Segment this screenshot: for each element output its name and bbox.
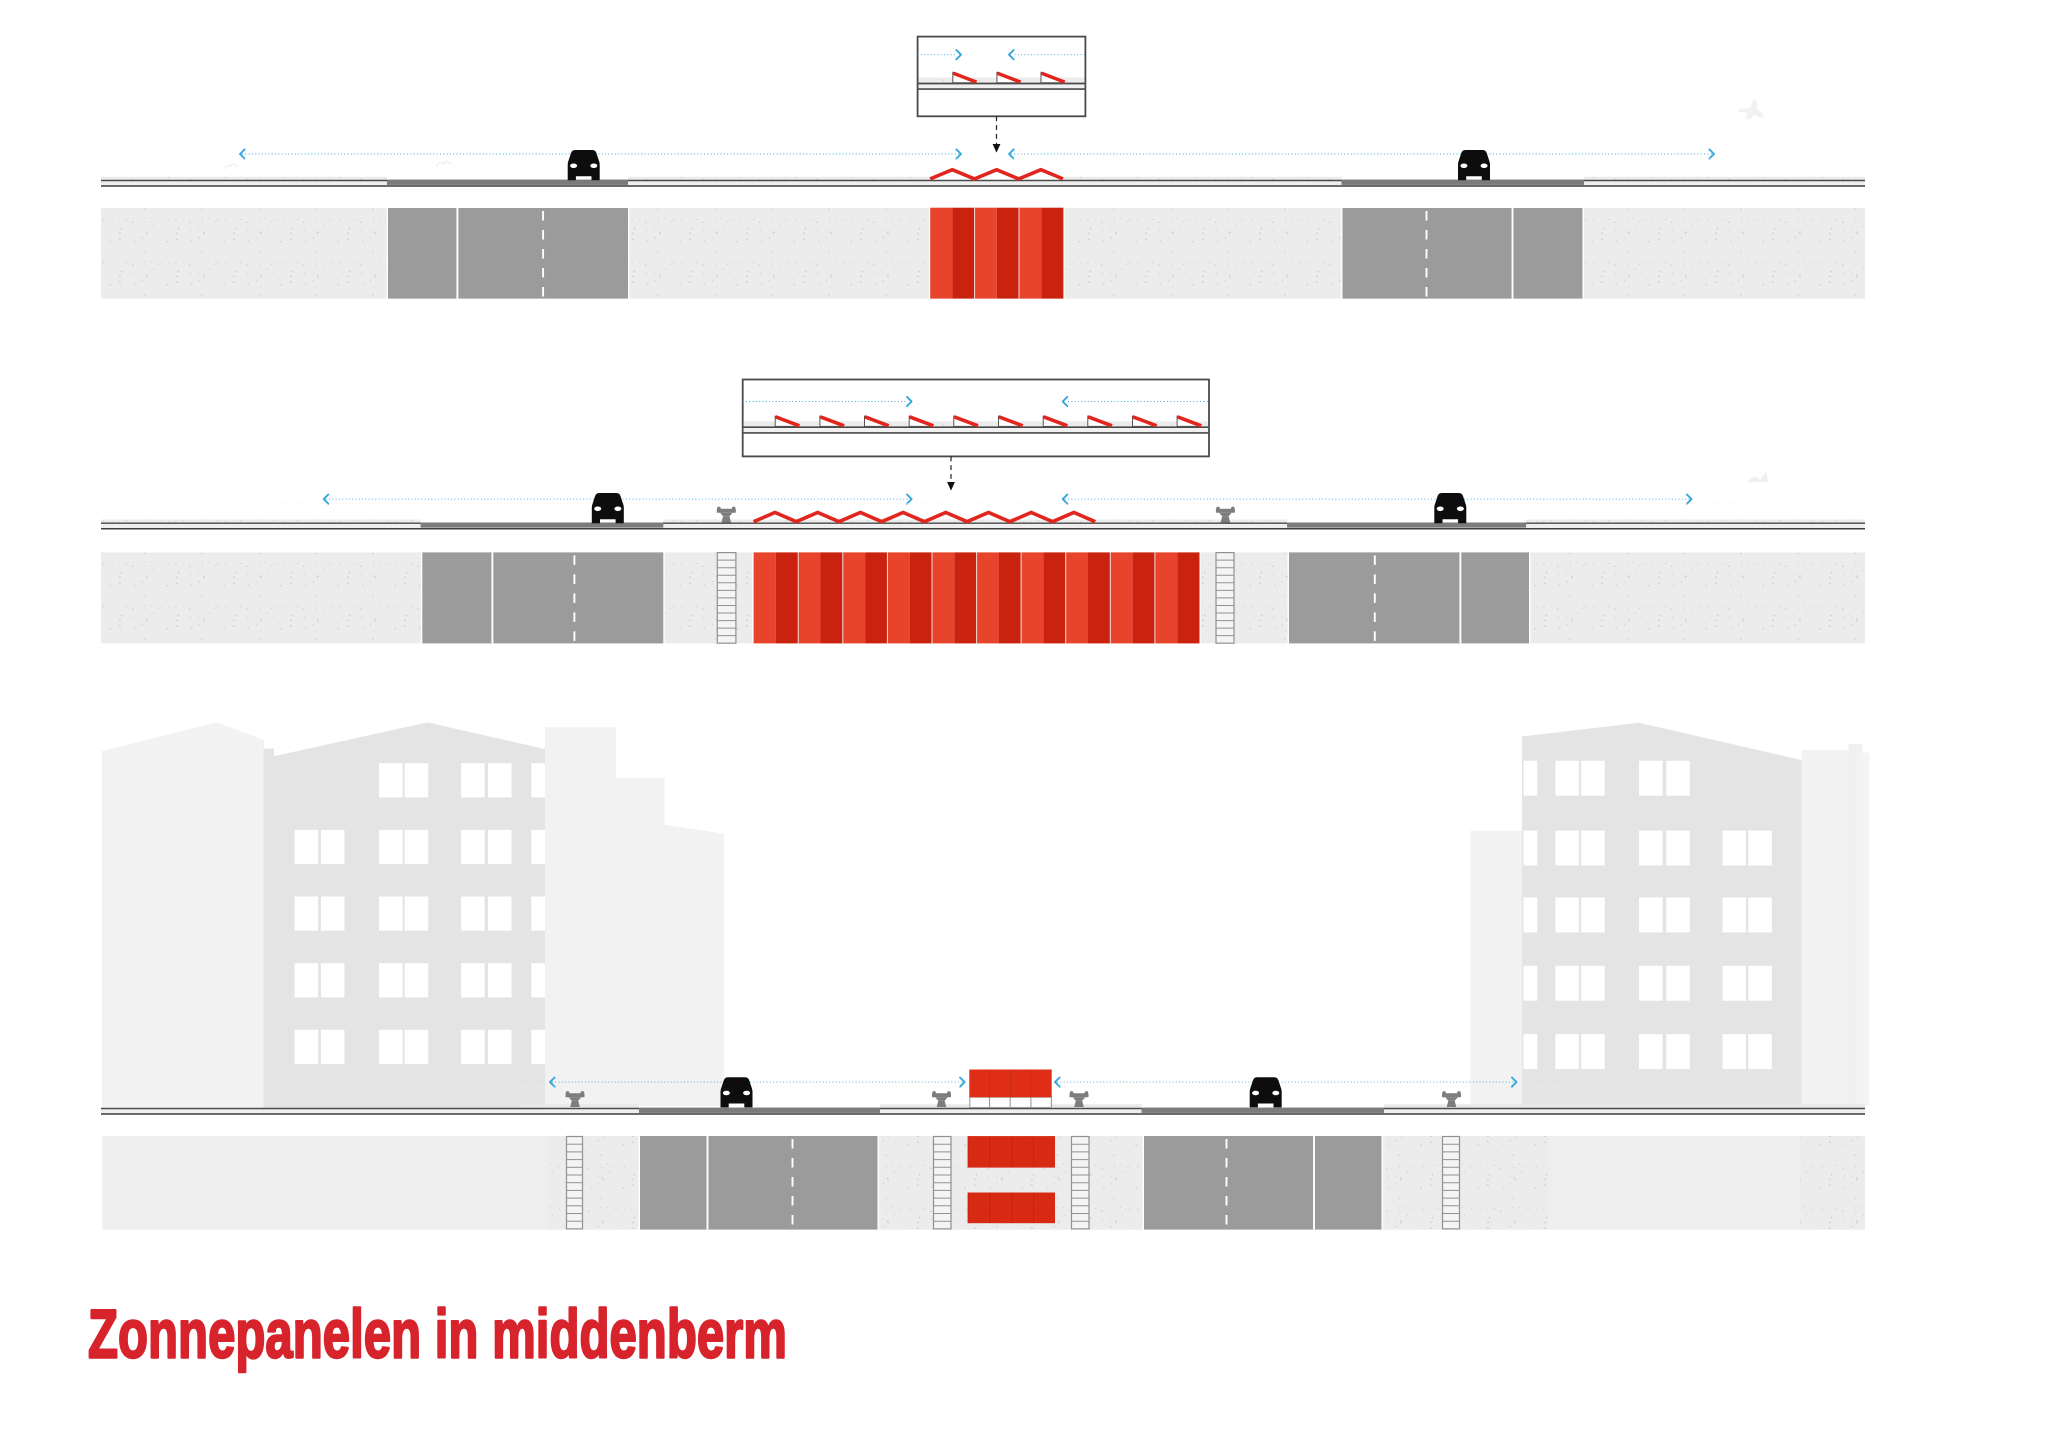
svg-text:Zonnepanelen in middenberm: Zonnepanelen in middenberm — [88, 1296, 787, 1373]
